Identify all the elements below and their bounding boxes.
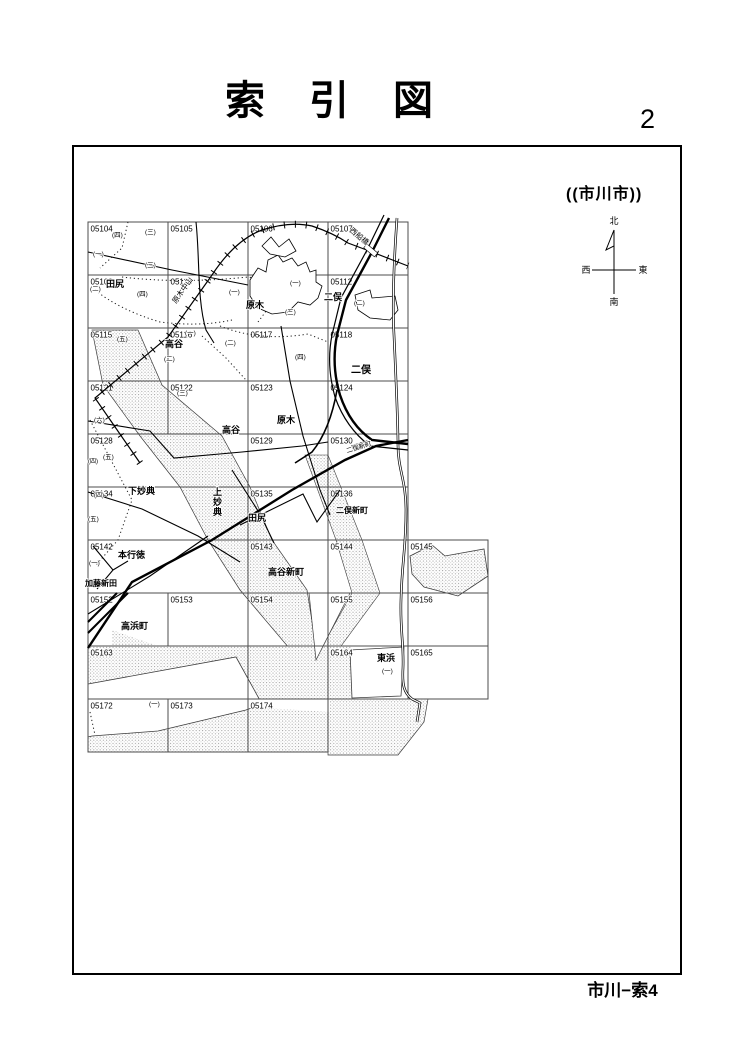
cell-number-label: 05130	[331, 437, 354, 446]
cell-number-label: 05104	[91, 225, 114, 234]
cell-number-label: 05115	[91, 331, 113, 340]
place-name-label: (五)	[103, 453, 114, 461]
block-outline-polygons	[250, 237, 398, 320]
place-name-label: (一)	[93, 251, 104, 258]
cell-number-label: 05136	[331, 490, 354, 499]
cell-number-label: 05163	[91, 649, 114, 658]
cell-number-label: 05155	[331, 596, 354, 605]
place-name-label: 田尻	[248, 513, 266, 523]
place-name-label: 東浜	[377, 652, 395, 663]
place-name-label: 加藤新田	[84, 578, 117, 588]
place-name-label: (五)	[88, 515, 99, 523]
place-name-label: (三)	[145, 228, 156, 236]
cell-number-label: 05128	[91, 437, 114, 446]
cell-number-label: 05143	[251, 543, 274, 552]
place-name-label: 原木	[246, 299, 265, 310]
place-name-label: 高谷	[165, 338, 184, 349]
cell-number-label: 05118	[331, 331, 353, 340]
place-name-label: (一)	[229, 289, 240, 296]
index-map: 0510405105051060510705109051100511105112…	[72, 145, 682, 973]
place-name-label: (四)	[137, 290, 148, 298]
place-name-label: (三)	[285, 308, 296, 316]
place-name-label: 二俣	[324, 291, 343, 302]
place-name-label: (三)	[145, 261, 156, 269]
place-name-label: (二)	[354, 300, 365, 307]
place-name-label: 上妙典	[213, 486, 222, 517]
place-name-label: (四)	[88, 458, 98, 465]
place-name-label: 本行徳	[118, 549, 145, 560]
cell-number-label: 05135	[251, 490, 274, 499]
place-name-label: 原木	[277, 414, 296, 425]
place-name-label: (一)	[149, 701, 160, 708]
cell-number-label: 05153	[171, 596, 194, 605]
place-name-label: (二)	[90, 286, 101, 293]
cell-number-label: 05165	[411, 649, 434, 658]
place-name-label: (六)	[94, 415, 105, 424]
place-name-label: (二)	[164, 356, 175, 363]
place-name-label: (一)	[382, 668, 393, 675]
place-name-label: (一)	[89, 560, 100, 567]
place-name-label: (四)	[94, 492, 104, 499]
place-name-label: (二)	[225, 340, 236, 347]
cell-number-label: 05144	[331, 543, 354, 552]
place-name-label: (一)	[185, 330, 196, 337]
cell-number-label: 05154	[251, 596, 274, 605]
place-name-label: 二俣新町	[336, 505, 368, 515]
page-title: 索 引 図	[0, 68, 660, 126]
cell-number-label: 05174	[251, 702, 274, 711]
cell-number-label: 05156	[411, 596, 434, 605]
cell-number-label: 05172	[91, 702, 114, 711]
place-name-label: 田尻	[106, 279, 124, 289]
cell-number-label: 05129	[251, 437, 274, 446]
cell-number-label: 05106	[251, 225, 274, 234]
place-name-label: (一)	[290, 280, 301, 287]
page-number: 2	[640, 104, 655, 135]
place-name-label: (四)	[112, 231, 123, 239]
place-name-label: 下妙典	[128, 485, 155, 496]
place-name-label: (四)	[295, 353, 306, 361]
cell-number-label: 05117	[251, 331, 273, 340]
place-name-label: (五)	[117, 335, 128, 343]
place-name-label: 高谷新町	[268, 566, 304, 577]
cell-number-label: 05173	[171, 702, 194, 711]
place-name-label: (三)	[177, 389, 188, 397]
cell-number-label: 05145	[411, 543, 434, 552]
cell-number-label: 05105	[171, 225, 194, 234]
sheet-code-footer: 市川−索4	[560, 976, 685, 1001]
place-name-label: 高谷	[222, 424, 241, 435]
cell-number-label: 05164	[331, 649, 354, 658]
scanned-map-index-page: 索 引 図 2 ((市川市)) 北 西 東 南	[0, 0, 747, 1061]
place-name-label: 高浜町	[121, 620, 148, 631]
cell-number-label: 05123	[251, 384, 274, 393]
place-name-label: 二俣	[351, 363, 372, 376]
